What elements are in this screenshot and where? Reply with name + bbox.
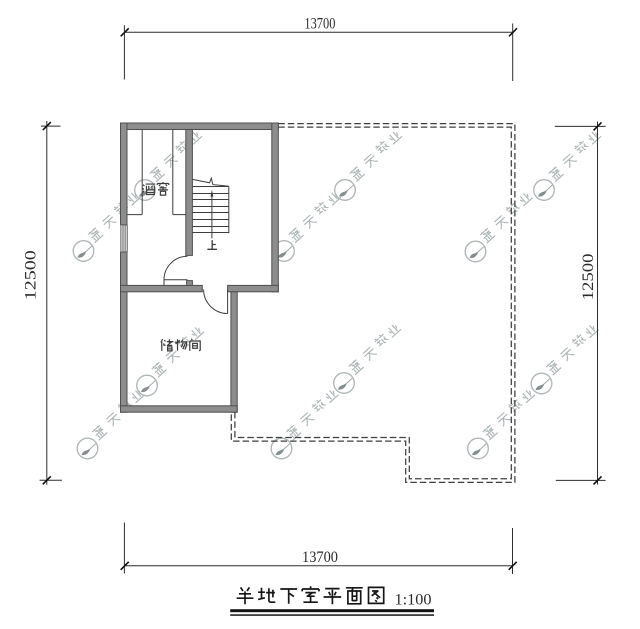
svg-text:12500: 12500 xyxy=(580,253,597,300)
svg-text:13700: 13700 xyxy=(302,549,338,566)
svg-text:13700: 13700 xyxy=(304,16,335,33)
svg-text:12500: 12500 xyxy=(23,250,40,300)
svg-text:1:100: 1:100 xyxy=(395,592,432,609)
